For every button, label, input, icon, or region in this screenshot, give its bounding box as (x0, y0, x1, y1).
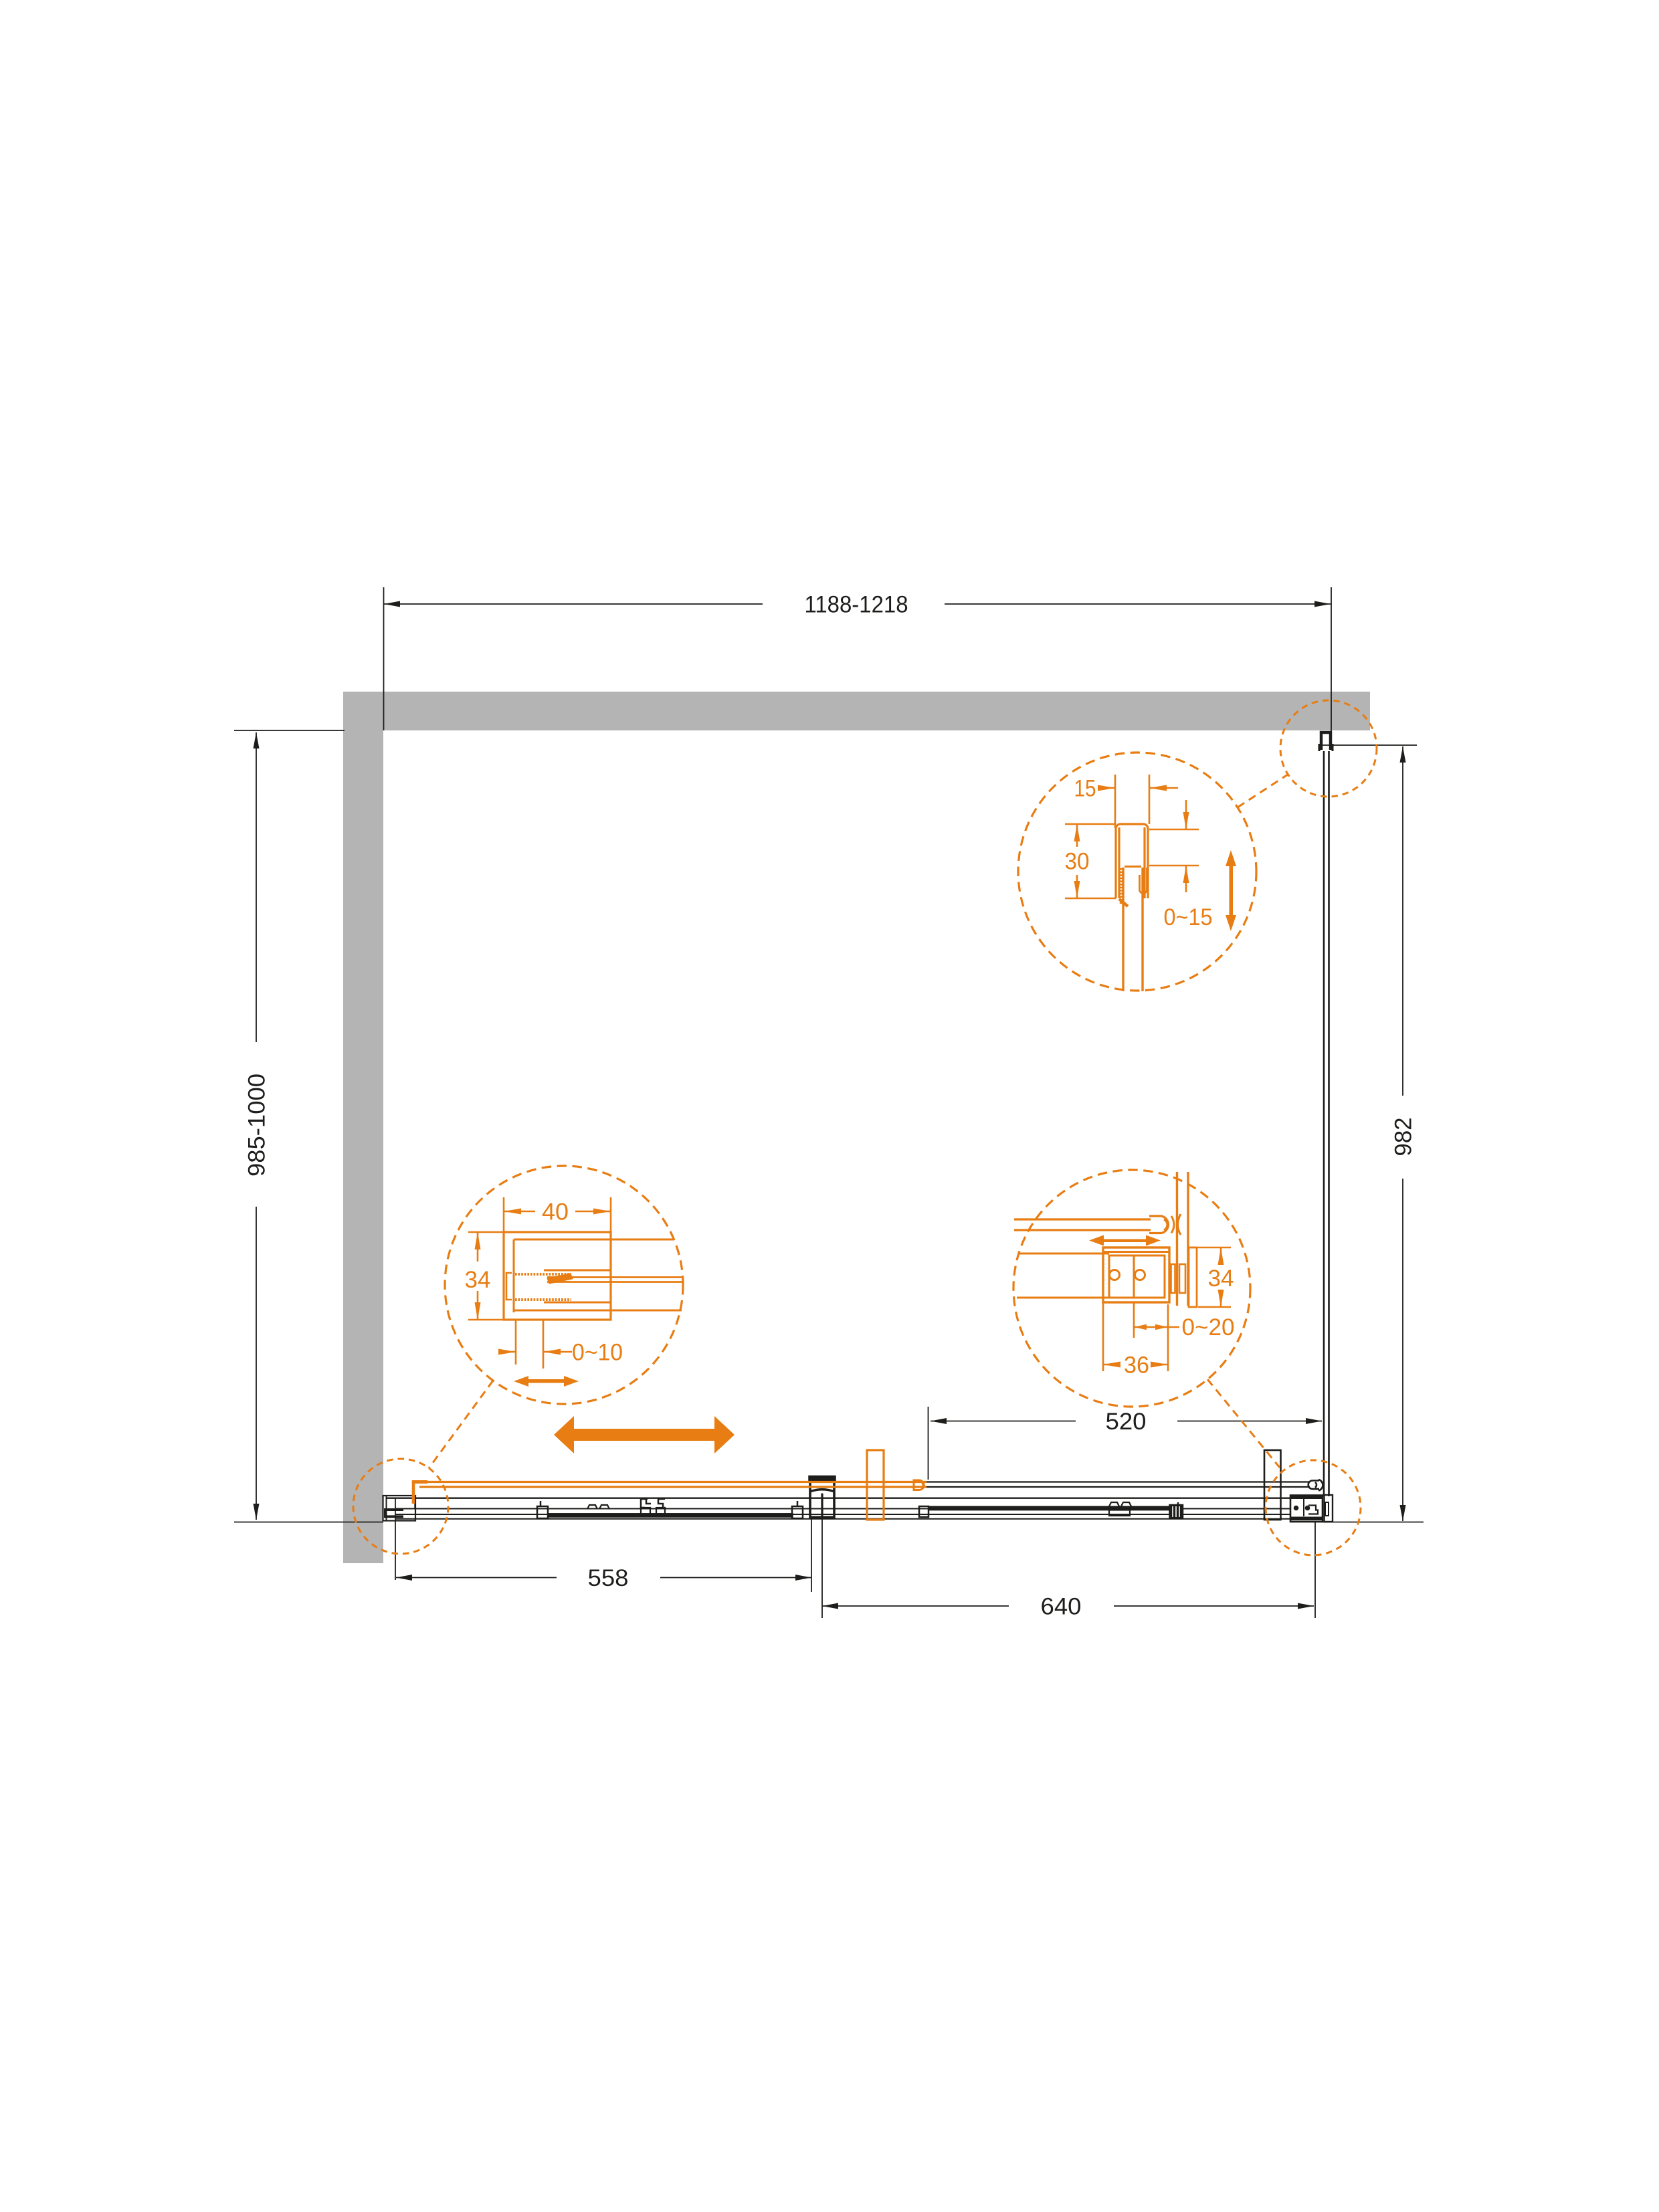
svg-text:985-1000: 985-1000 (244, 1074, 270, 1177)
svg-text:1188-1218: 1188-1218 (805, 592, 908, 618)
svg-text:34: 34 (1208, 1266, 1234, 1292)
svg-text:0~20: 0~20 (1182, 1314, 1235, 1340)
svg-text:982: 982 (1391, 1118, 1417, 1157)
svg-text:0~15: 0~15 (1164, 904, 1213, 930)
svg-text:36: 36 (1124, 1352, 1149, 1379)
svg-text:40: 40 (542, 1199, 569, 1225)
svg-text:0~10: 0~10 (572, 1340, 623, 1366)
svg-text:558: 558 (588, 1565, 629, 1591)
svg-text:520: 520 (1106, 1409, 1147, 1435)
svg-text:30: 30 (1065, 849, 1090, 875)
svg-text:15: 15 (1074, 776, 1096, 802)
svg-text:640: 640 (1041, 1594, 1082, 1620)
svg-text:34: 34 (465, 1267, 491, 1293)
